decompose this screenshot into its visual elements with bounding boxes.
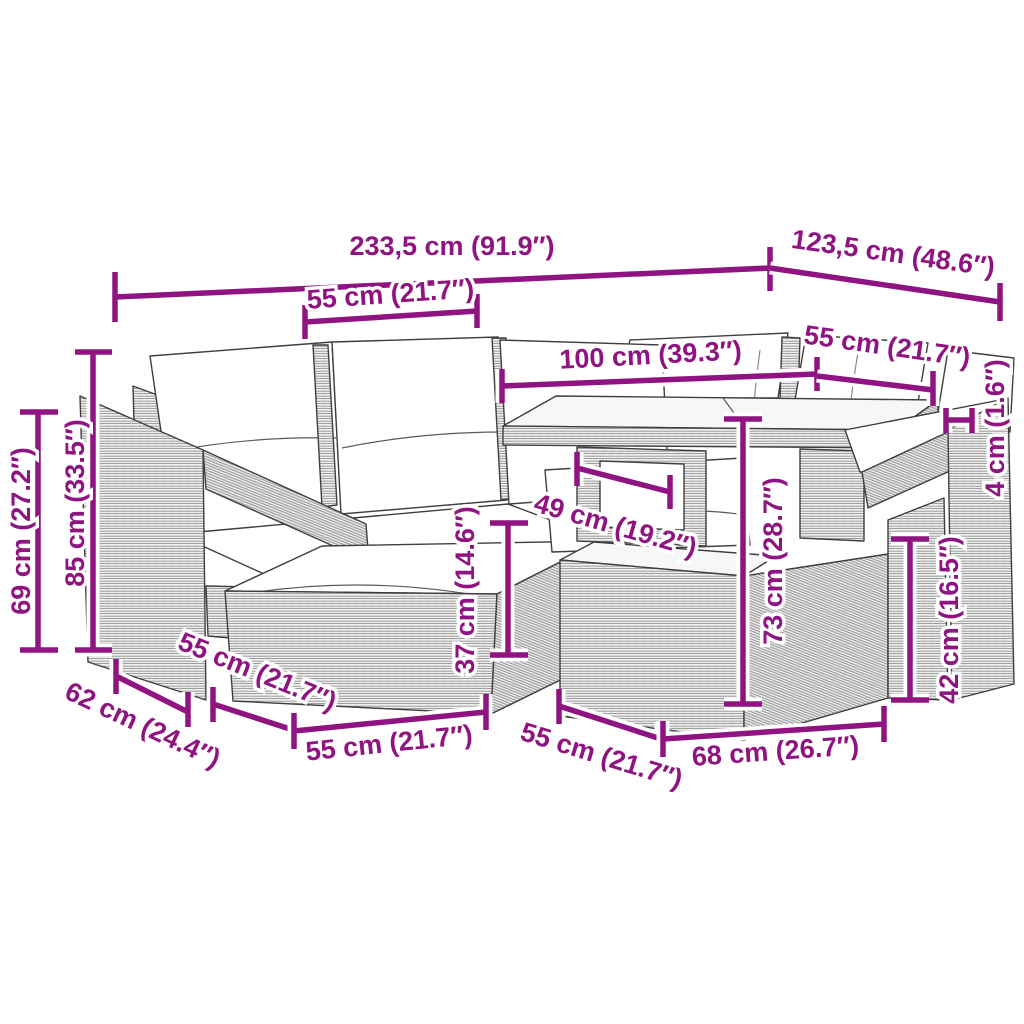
dim-label: 85 cm (33.5″) xyxy=(60,419,90,587)
dim-label: 69 cm (27.2″) xyxy=(6,447,36,615)
dim-label: 233,5 cm (91.9″) xyxy=(349,231,554,261)
product-dimension-diagram: 233,5 cm (91.9″) 123,5 cm (48.6″) 55 cm … xyxy=(0,0,1024,1024)
furniture-illustration xyxy=(80,333,1014,740)
diagram-svg: 233,5 cm (91.9″) 123,5 cm (48.6″) 55 cm … xyxy=(0,0,1024,1024)
dim-label: 73 cm (28.7″) xyxy=(758,477,788,645)
dimension-seat-width: 55 cm (21.7″) xyxy=(305,273,477,339)
table-pedestal-right xyxy=(800,449,864,541)
table-top-edge xyxy=(503,426,896,448)
dim-label: 4 cm (1.6″) xyxy=(980,359,1010,497)
back-cushion-middle xyxy=(332,337,507,514)
dimension-arm-height: 69 cm (27.2″) xyxy=(6,412,58,650)
dimension-overall-depth: 123,5 cm (48.6″) xyxy=(770,224,1000,321)
dim-label: 42 cm (16.5″) xyxy=(934,536,964,704)
dim-label: 37 cm (14.6″) xyxy=(450,506,480,674)
